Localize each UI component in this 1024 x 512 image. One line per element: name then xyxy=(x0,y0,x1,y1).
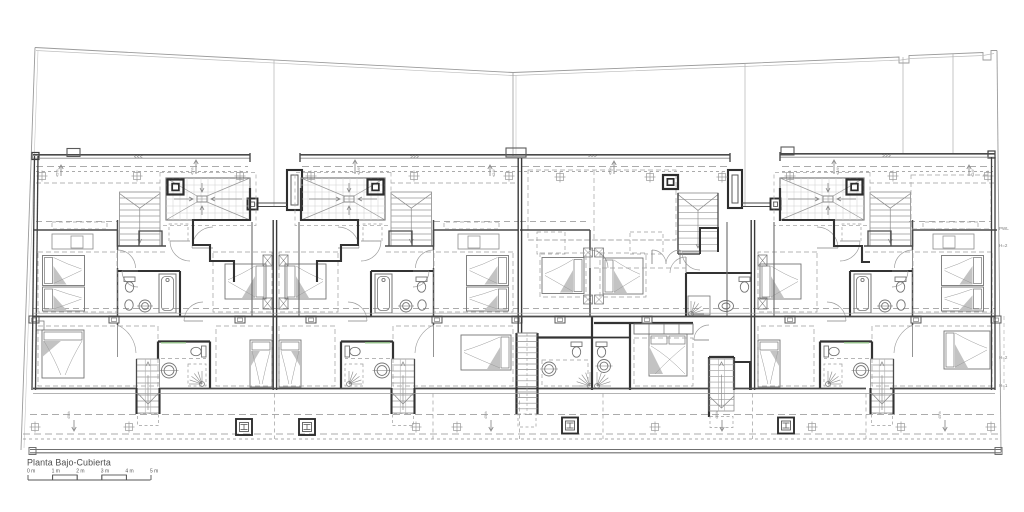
svg-text:45%: 45% xyxy=(484,411,488,419)
svg-text:45%: 45% xyxy=(715,411,719,419)
svg-text:3 m: 3 m xyxy=(101,469,109,475)
svg-text:45%: 45% xyxy=(191,167,195,175)
svg-text:45%: 45% xyxy=(971,169,975,177)
svg-text:1 m: 1 m xyxy=(52,469,60,475)
svg-text:0 m: 0 m xyxy=(27,469,35,475)
svg-text:Planta Bajo-Cubierta: Planta Bajo-Cubierta xyxy=(27,458,111,468)
svg-text:5 m: 5 m xyxy=(150,469,158,475)
svg-text:PWL: PWL xyxy=(999,226,1009,231)
svg-text:45%: 45% xyxy=(836,167,840,175)
svg-text:45%: 45% xyxy=(492,169,496,177)
svg-text:45%: 45% xyxy=(56,169,60,177)
svg-text:45%: 45% xyxy=(609,167,613,175)
svg-text:45%: 45% xyxy=(67,411,71,419)
svg-text:45%: 45% xyxy=(357,167,361,175)
svg-text:2 m: 2 m xyxy=(76,469,84,475)
svg-text:H=2: H=2 xyxy=(999,243,1008,248)
svg-text:45%: 45% xyxy=(938,411,942,419)
svg-text:4 m: 4 m xyxy=(125,469,133,475)
svg-text:H=2: H=2 xyxy=(999,355,1008,360)
svg-text:H=1: H=1 xyxy=(999,383,1008,388)
